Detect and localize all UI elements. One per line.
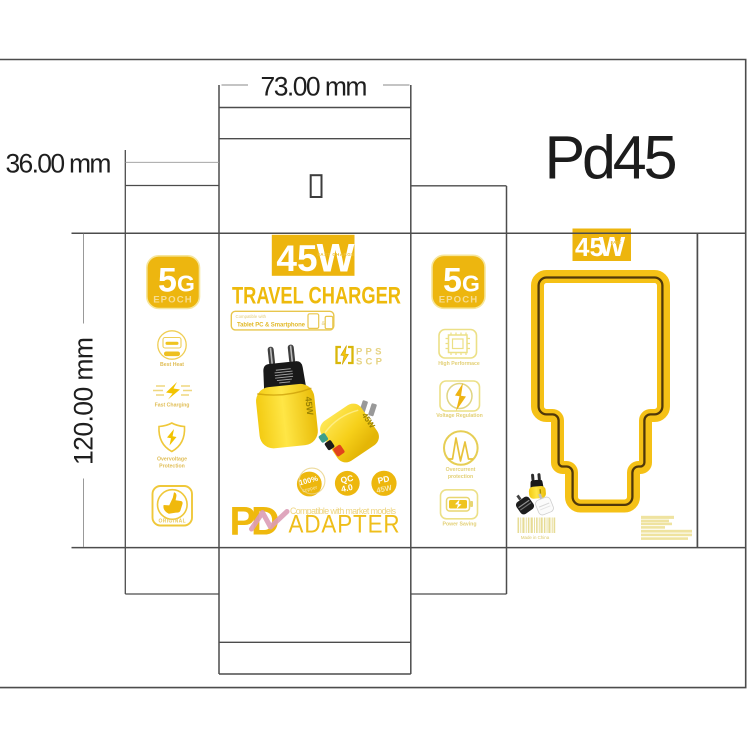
svg-text:SCP: SCP	[356, 357, 385, 368]
svg-text:Fast Charging: Fast Charging	[155, 403, 190, 409]
svg-text:Tablet PC & Smartphone: Tablet PC & Smartphone	[237, 322, 306, 328]
svg-text:Compatible with: Compatible with	[236, 314, 267, 319]
svg-text:Best Heat: Best Heat	[160, 362, 184, 368]
svg-text:36.00 mm: 36.00 mm	[6, 149, 112, 179]
svg-text:Overcurrent: Overcurrent	[446, 467, 476, 473]
svg-text:ADAPTER: ADAPTER	[289, 511, 401, 539]
svg-text:FAST: FAST	[611, 240, 622, 245]
svg-text:G: G	[177, 271, 195, 297]
svg-text:73.00 mm: 73.00 mm	[261, 72, 368, 102]
svg-text:Overvoltage: Overvoltage	[157, 457, 187, 463]
svg-text:Protection: Protection	[159, 463, 185, 469]
svg-text:45W: 45W	[303, 396, 315, 416]
svg-text:protection: protection	[448, 474, 473, 480]
svg-text:W: W	[317, 237, 355, 281]
svg-text:EPOCH: EPOCH	[439, 294, 479, 305]
svg-text:Pd45: Pd45	[545, 124, 678, 192]
svg-text:EPOCH: EPOCH	[153, 295, 193, 306]
svg-text:ORIGINAL: ORIGINAL	[158, 519, 186, 525]
svg-text:Voltage Regulation: Voltage Regulation	[436, 413, 483, 419]
svg-text:G: G	[462, 270, 480, 296]
svg-text:Power Saving: Power Saving	[442, 522, 476, 528]
svg-text:High Performace: High Performace	[438, 361, 480, 367]
svg-text:W: W	[599, 231, 626, 262]
svg-text:Made in China: Made in China	[521, 535, 550, 540]
svg-text:45: 45	[276, 238, 317, 279]
svg-text:120.00 mm: 120.00 mm	[69, 337, 99, 465]
svg-text:FAST CHARGE: FAST CHARGE	[317, 252, 354, 257]
svg-text:TRAVEL CHARGER: TRAVEL CHARGER	[232, 283, 401, 310]
